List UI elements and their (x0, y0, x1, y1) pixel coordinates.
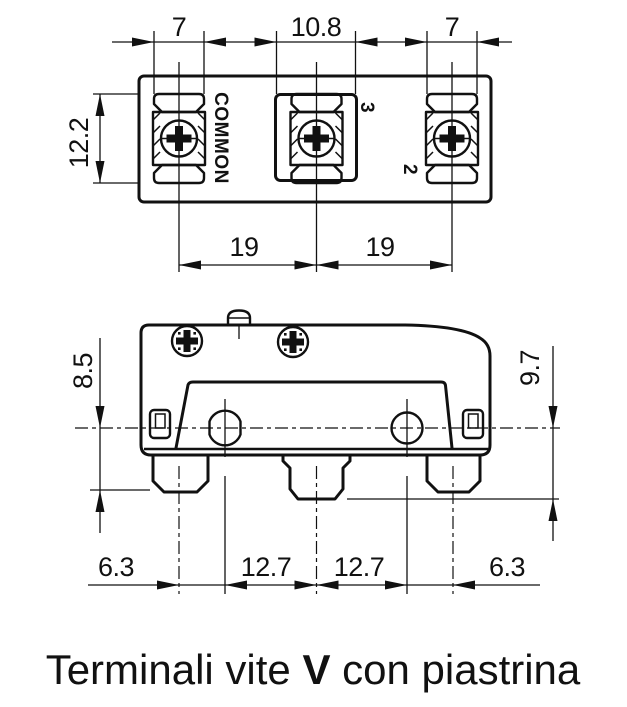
dim-label-height: 12.2 (64, 118, 94, 169)
side-slot-right (463, 410, 483, 438)
microswitch-drawing: COMMON 3 2 7 10.8 7 (0, 0, 627, 707)
terminal-shroud-plate (176, 382, 452, 448)
front-view: 8.5 9.7 6.3 12.7 12.7 6.3 (68, 311, 560, 595)
dim-label-height-right: 9.7 (515, 350, 545, 386)
technical-drawing-page: COMMON 3 2 7 10.8 7 (0, 0, 627, 707)
caption-suffix: con piastrina (330, 646, 580, 693)
terminal-2 (426, 62, 478, 272)
cover-screw-left (172, 326, 202, 356)
top-view: COMMON 3 2 7 10.8 7 (64, 12, 512, 272)
terminal-label-common: COMMON (210, 92, 231, 184)
dim-label-bottom-3: 12.7 (334, 552, 385, 582)
terminal-common (153, 62, 205, 272)
dim-label-pitch-right: 19 (365, 232, 394, 262)
dim-label-pitch-left: 19 (229, 232, 258, 262)
terminal-3 (291, 62, 343, 272)
caption: Terminali vite V con piastrina (46, 646, 581, 693)
dim-label-center-box: 10.8 (291, 12, 342, 42)
dim-label-height-left: 8.5 (68, 353, 98, 389)
dimension-height-left: 8.5 (68, 338, 150, 533)
dim-label-plate-right: 7 (445, 12, 460, 42)
dim-label-bottom-4: 6.3 (489, 552, 525, 582)
dimension-bottom-row: 6.3 12.7 12.7 6.3 (88, 552, 540, 590)
terminal-label-2: 2 (399, 164, 420, 175)
caption-prefix: Terminali vite (46, 646, 303, 693)
cover-screw-right (278, 327, 308, 357)
side-slot-left (150, 410, 170, 438)
dimension-terminal-height: 12.2 (64, 94, 139, 183)
dimension-terminal-pitch: 19 19 (179, 232, 452, 270)
terminal-label-3: 3 (356, 102, 377, 113)
caption-bold-v: V (302, 646, 330, 693)
dim-label-plate-left: 7 (172, 12, 187, 42)
dim-label-bottom-2: 12.7 (241, 552, 292, 582)
terminal-foot-left (153, 455, 208, 492)
dim-label-bottom-1: 6.3 (98, 552, 134, 582)
